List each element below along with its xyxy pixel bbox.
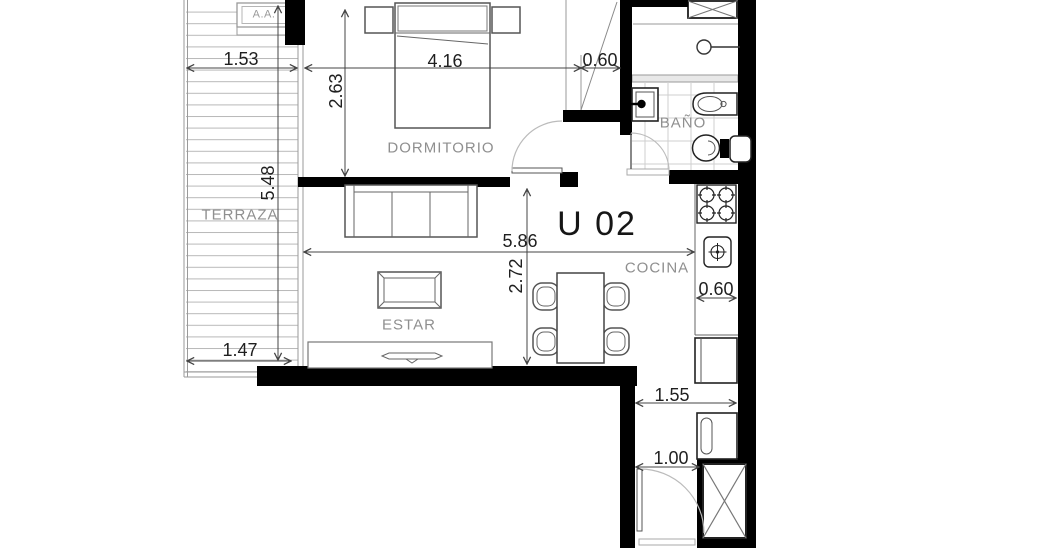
shaft-box: [703, 464, 746, 538]
dim-label-closet-width: 0.60: [582, 51, 617, 69]
dining-table: [557, 273, 604, 363]
shower-screen: [632, 75, 738, 82]
wall-bath-top: [632, 0, 688, 7]
wall-door-stop: [560, 172, 578, 187]
dim-label-hall-width: 1.55: [654, 386, 689, 404]
wall-corridor-left: [620, 386, 635, 548]
room-label-bano: BAÑO: [660, 116, 707, 131]
nightstand-left: [365, 7, 393, 33]
toilet-tank: [720, 139, 729, 158]
door-bathroom: [627, 133, 669, 175]
door-swing-arc: [640, 469, 704, 533]
door-threshold: [627, 169, 669, 175]
bathroom-sink: [629, 88, 658, 121]
door-dormitorio: [512, 121, 562, 173]
shower-head-icon: [697, 40, 740, 54]
room-label-cocina: COCINA: [625, 261, 689, 276]
wall-niche-fixture: [730, 136, 751, 162]
washing-machine: [697, 413, 737, 459]
stove: [697, 185, 736, 223]
sofa: [345, 185, 477, 237]
door-swing-arc: [512, 121, 562, 171]
chair: [533, 328, 559, 355]
wall-estar-bottom: [257, 366, 637, 386]
tv-cabinet: [308, 342, 492, 368]
dim-label-dormitorio-depth: 2.63: [327, 73, 345, 108]
door-leaf: [512, 168, 562, 173]
wall-terraza-corner: [285, 0, 305, 45]
tv: [382, 353, 442, 359]
door-entrance: [637, 469, 704, 545]
door-swing-arc: [631, 133, 669, 171]
bidet: [693, 93, 737, 115]
wall-closet: [563, 110, 625, 122]
dim-label-terraza-bottom: 1.47: [222, 341, 257, 359]
dim-label-living-depth: 2.72: [507, 258, 525, 293]
chair: [533, 283, 559, 310]
chair: [603, 328, 629, 355]
dim-label-terraza-length: 5.48: [259, 165, 277, 200]
dim-label-terraza-width: 1.53: [223, 50, 258, 68]
ac-unit-label: A.A.: [253, 10, 276, 21]
coffee-table: [378, 272, 441, 308]
door-leaf: [637, 469, 642, 531]
dim-label-dormitorio-width: 4.16: [427, 52, 462, 70]
dining-set: [533, 273, 629, 363]
toilet: [693, 135, 752, 162]
duct-top: [688, 1, 737, 18]
nightstand-right: [492, 7, 520, 33]
dim-label-counter-width: 0.60: [698, 280, 733, 298]
faucet-icon: [637, 100, 645, 108]
dim-label-entry-width: 1.00: [653, 449, 688, 467]
unit-label: U 02: [557, 207, 637, 241]
floor-plan-canvas: 1.53 4.16 0.60 2.63 5.48 1.47 5.86 2.72 …: [0, 0, 1057, 548]
floor-plan-drawing: [0, 0, 1057, 548]
door-threshold: [639, 539, 695, 545]
refrigerator: [695, 338, 737, 383]
chair: [603, 283, 629, 310]
kitchen-sink: [704, 237, 731, 267]
dim-label-living-width: 5.86: [502, 232, 537, 250]
room-label-estar: ESTAR: [382, 318, 436, 333]
room-label-terraza: TERRAZA: [201, 208, 278, 223]
room-label-dormitorio: DORMITORIO: [387, 141, 494, 156]
wall-bath-left: [620, 0, 632, 135]
